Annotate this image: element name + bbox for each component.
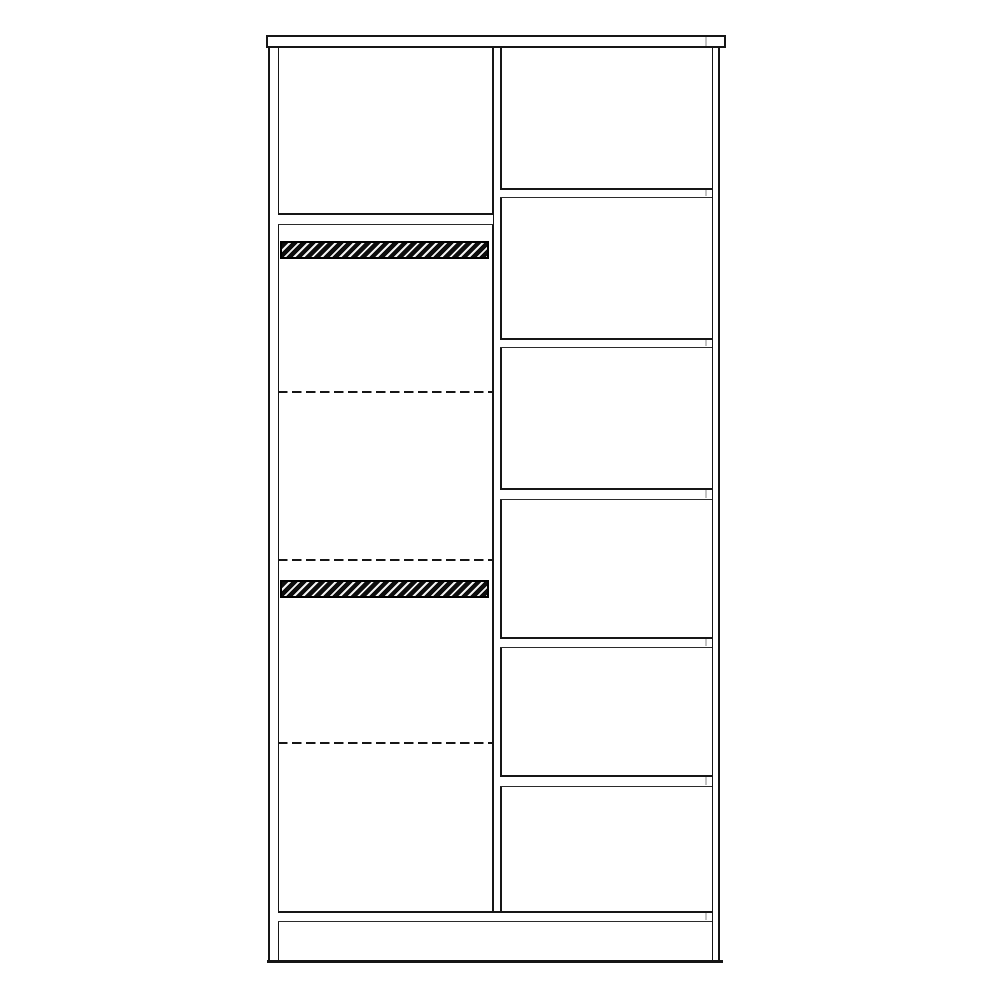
lower-hanging-rail	[280, 580, 489, 598]
left-side-panel-inner-edge	[278, 47, 279, 962]
right-shelf-2-joint-mark	[705, 340, 707, 346]
right-side-panel-outer-edge	[718, 47, 720, 962]
left-adjustable-shelf-position-2	[278, 559, 492, 561]
left-side-panel-outer-edge	[268, 47, 270, 962]
right-shelf-4	[500, 637, 712, 648]
base-bottom-edge	[267, 960, 723, 963]
center-divider-left-edge	[492, 47, 494, 912]
right-shelf-5	[500, 775, 712, 787]
bottom-board-joint-mark	[705, 913, 707, 920]
wardrobe-diagram	[0, 0, 1000, 1000]
right-shelf-5-joint-mark	[705, 777, 707, 785]
top-panel	[266, 35, 726, 48]
right-shelf-1	[500, 188, 712, 198]
diagram-layer	[0, 0, 1000, 1000]
left-adjustable-shelf-position-1	[278, 391, 492, 393]
right-shelf-4-joint-mark	[705, 639, 707, 646]
left-top-shelf	[278, 213, 493, 225]
upper-hanging-rail	[280, 241, 489, 259]
right-shelf-1-joint-mark	[705, 190, 707, 196]
left-adjustable-shelf-position-3	[278, 742, 492, 744]
right-side-panel-inner-edge	[712, 47, 713, 962]
right-shelf-3-joint-mark	[705, 490, 707, 498]
right-shelf-2	[500, 338, 712, 348]
bottom-shelf-board	[278, 911, 712, 922]
top-panel-joint-mark	[705, 37, 707, 46]
right-shelf-3	[500, 488, 712, 500]
